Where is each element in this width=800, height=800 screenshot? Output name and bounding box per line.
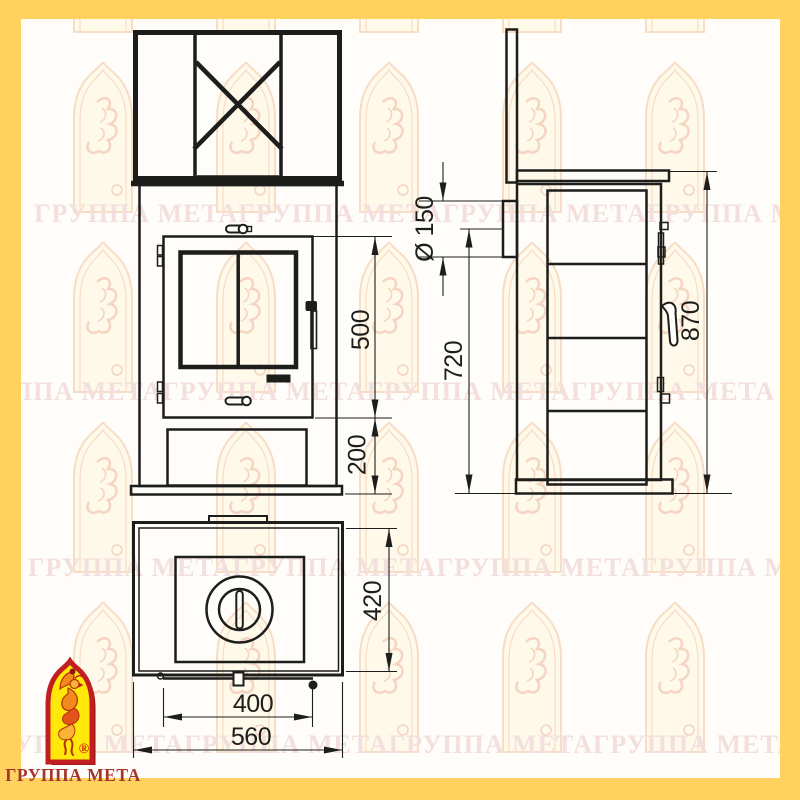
dim-overall-height-label: 870 bbox=[677, 301, 705, 341]
dim-door-height-label: 500 bbox=[347, 310, 375, 350]
logo-caption: ГРУППА МЕТА bbox=[5, 765, 141, 785]
stove-technical-drawing-page: ГРУППА МЕТАГРУППА МЕТАГРУППА МЕТАГРУППА … bbox=[0, 0, 800, 800]
dim-flue-axis-height-label: 720 bbox=[440, 341, 468, 381]
dim-overall-width-label: 560 bbox=[231, 723, 271, 751]
air-control-lever-top bbox=[226, 225, 252, 234]
nameplate bbox=[267, 375, 291, 383]
dim-overall-depth-label: 420 bbox=[359, 581, 387, 621]
air-control-lever-bottom bbox=[226, 397, 251, 406]
registered-trademark-icon: ® bbox=[79, 742, 90, 757]
door-latch-plan bbox=[234, 673, 244, 686]
dim-door-width-label: 400 bbox=[233, 690, 273, 718]
watermark-layer: ГРУППА МЕТАГРУППА МЕТАГРУППА МЕТАГРУППА … bbox=[0, 19, 800, 778]
watermark-text-row: ГРУППА МЕТАГРУППА МЕТАГРУППА МЕТАГРУППА … bbox=[28, 553, 800, 582]
dim-base-height-label: 200 bbox=[343, 435, 371, 475]
watermark-text-row: ГРУППА МЕТАГРУППА МЕТАГРУППА МЕТАГРУППА … bbox=[0, 730, 797, 759]
dim-flue-diameter-label: Ø 150 bbox=[411, 196, 439, 262]
drawing-canvas: ГРУППА МЕТАГРУППА МЕТАГРУППА МЕТАГРУППА … bbox=[0, 0, 800, 800]
